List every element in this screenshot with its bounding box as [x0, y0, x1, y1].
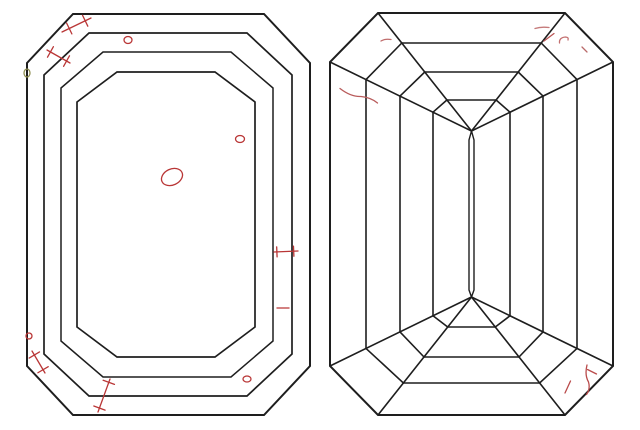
needle-mark: [535, 27, 549, 28]
feather-mark-tick: [29, 352, 39, 358]
crystal-mark: [236, 136, 245, 143]
needle-mark: [582, 47, 587, 52]
needle-mark: [381, 39, 391, 41]
girdle-outline: [27, 14, 310, 415]
pavilion-view: [330, 13, 613, 415]
feather-mark-tick: [47, 47, 53, 57]
table-outline: [77, 72, 255, 357]
corner-cut-line: [495, 316, 510, 327]
keel-line: [472, 131, 475, 297]
corner-cut-line: [366, 43, 402, 80]
diamond-clarity-plot: [0, 0, 640, 430]
corner-cut-line: [496, 100, 510, 112]
corner-cut-line: [541, 43, 577, 80]
needle-mark: [565, 381, 571, 393]
crystal-mark: [159, 165, 186, 189]
corner-cut-line: [433, 100, 447, 112]
feather-mark-tick: [67, 23, 72, 34]
crown-step-2: [61, 52, 273, 377]
corner-radial: [378, 297, 472, 415]
crystal-mark: [124, 37, 132, 44]
corner-cut-line: [366, 348, 403, 383]
corner-cut-line: [518, 72, 543, 96]
feather-mark: [340, 89, 378, 104]
feather-mark-tick: [64, 56, 70, 66]
feather-mark-tick: [83, 15, 88, 26]
corner-cut-line: [400, 332, 424, 357]
corner-cut-line: [540, 348, 577, 383]
keel-line: [469, 131, 472, 297]
crystal-mark: [243, 376, 251, 382]
feather-mark-tick: [38, 367, 48, 373]
crown-view: [24, 14, 310, 415]
feather-mark-axis: [274, 251, 298, 252]
corner-radial: [472, 297, 566, 415]
feather-mark: [559, 37, 568, 43]
corner-cut-line: [400, 72, 425, 96]
clarity-plot-page: [0, 0, 640, 430]
feather-mark: [274, 246, 298, 257]
feather-mark: [47, 47, 70, 67]
corner-cut-line: [519, 332, 543, 357]
feather-mark: [62, 15, 91, 34]
needle-mark: [588, 370, 597, 375]
corner-cut-line: [433, 316, 448, 327]
